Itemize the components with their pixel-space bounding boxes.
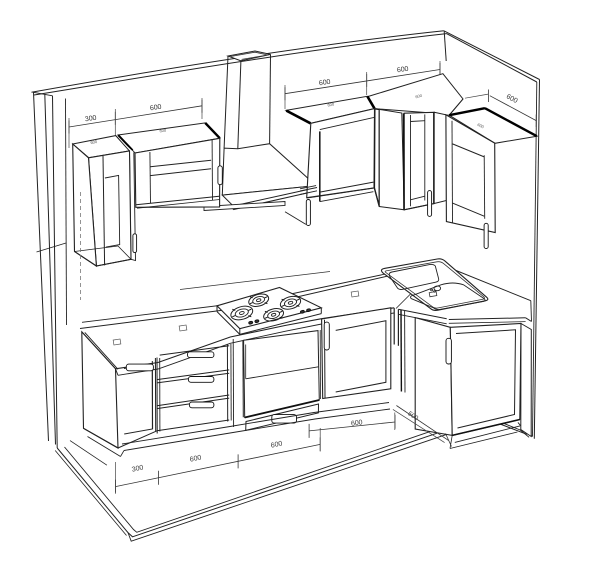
svg-text:600: 600 — [351, 419, 364, 427]
